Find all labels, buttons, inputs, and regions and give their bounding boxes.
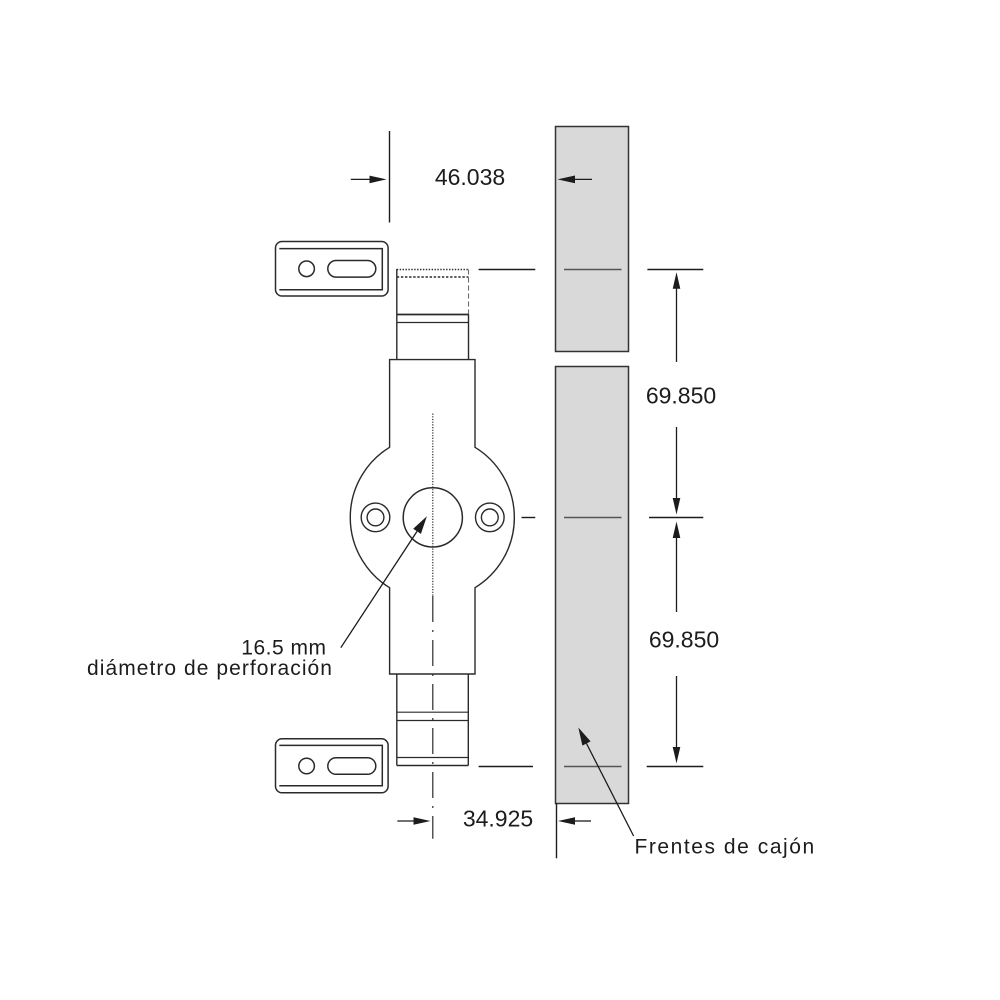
svg-text:69.850: 69.850: [649, 627, 719, 653]
svg-text:34.925: 34.925: [463, 806, 533, 832]
svg-text:69.850: 69.850: [646, 383, 716, 409]
svg-text:Frentes de cajón: Frentes de cajón: [635, 835, 816, 858]
svg-text:diámetro de perforación: diámetro de perforación: [87, 657, 333, 680]
svg-text:46.038: 46.038: [435, 164, 505, 190]
